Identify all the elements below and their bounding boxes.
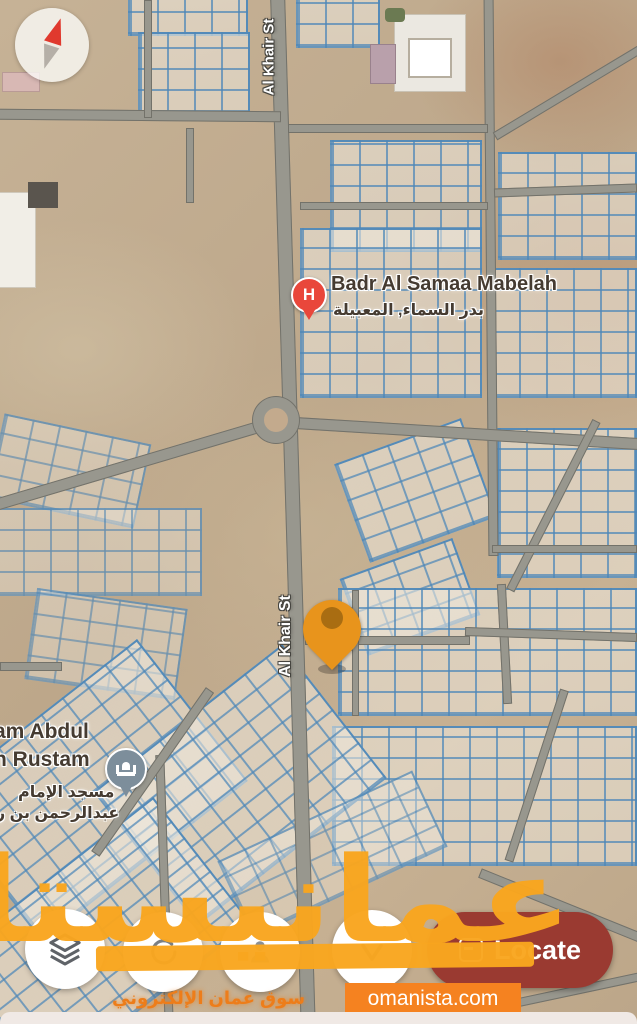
building (370, 44, 396, 84)
map-canvas[interactable]: Al Khair St Al Khair St H Badr Al Samaa … (0, 0, 637, 1024)
hospital-pin-tail (303, 310, 315, 320)
street-label-al-khair-top: Al Khair St (261, 19, 278, 96)
road (0, 109, 281, 122)
mosque-icon-dome (122, 762, 130, 770)
parcel-block (138, 32, 250, 114)
parcel-block (0, 508, 202, 596)
parcel-block (498, 152, 637, 260)
mosque-name-ar-line2: عبدالرحمن بن ر (0, 803, 119, 823)
road (288, 124, 488, 133)
compass-north (44, 16, 69, 46)
website-badge: omanista.com (345, 983, 521, 1014)
road (0, 662, 62, 671)
mosque-name-en-line1[interactable]: am Abdul (0, 720, 89, 744)
street-label-al-khair-mid: Al Khair St (277, 595, 295, 677)
road (492, 545, 637, 553)
roundabout (253, 397, 299, 443)
location-marker-dot (321, 607, 343, 629)
parcel-block (497, 428, 637, 578)
hospital-name-en[interactable]: Badr Al Samaa Mabelah (331, 273, 557, 296)
watermark-subtitle: سوق عمان الإلكتروني (112, 988, 305, 1009)
bottom-sheet-edge[interactable] (0, 1012, 637, 1024)
road (300, 202, 488, 210)
compass[interactable] (15, 8, 89, 82)
parcel-block (338, 588, 637, 716)
road (186, 128, 194, 203)
parcel-block (296, 0, 380, 48)
hospital-pin[interactable]: H (291, 277, 327, 313)
mosque-name-en-line2[interactable]: n Rustam (0, 748, 90, 772)
mosque-icon-base (117, 772, 135, 776)
building (28, 182, 58, 208)
road (144, 0, 152, 118)
mosque-icon (116, 762, 136, 776)
trees (385, 8, 405, 22)
building (408, 38, 452, 78)
website-url: omanista.com (368, 987, 499, 1011)
mosque-pin-tail (120, 786, 132, 797)
hospital-pin-letter: H (303, 285, 315, 305)
hospital-name-ar: بدر السماء, المعبيلة (333, 300, 484, 320)
mosque-name-ar-line1: مسجد الإمام (18, 782, 114, 802)
road (493, 43, 637, 141)
watermark-title: عمانيستا (0, 842, 573, 960)
compass-south (37, 43, 60, 71)
